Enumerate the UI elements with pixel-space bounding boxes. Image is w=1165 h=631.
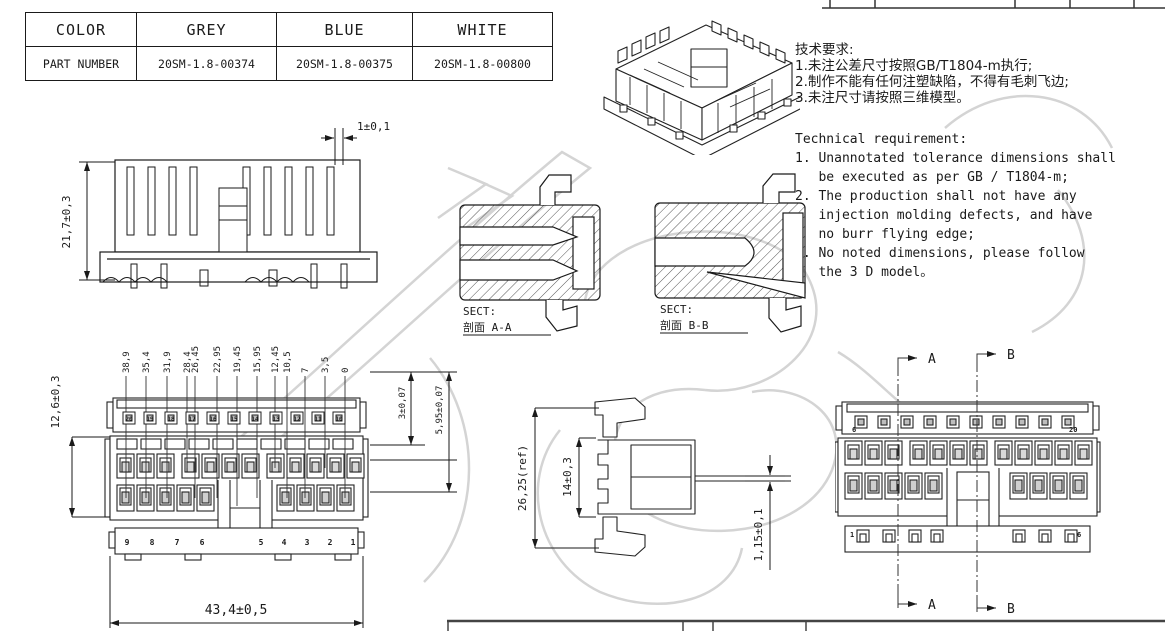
section-b-view: SECT: 剖面 B-B (645, 168, 825, 343)
section-b-name-label: 剖面 B-B (660, 318, 709, 332)
dim-pin-label: 1,15±0,1 (752, 509, 765, 562)
section-a-view: SECT: 剖面 A-A (445, 165, 625, 345)
technical-notes: 技术要求: 1.未注公差尺寸按照GB/T1804-m执行; 2.制作不能有任何注… (795, 42, 1165, 282)
top-pin-number: 16 (209, 416, 217, 423)
top-pin-number: 18 (167, 416, 175, 423)
dim-top-label: 1±0,1 (357, 120, 390, 133)
bottom-pin-number: 3 (305, 538, 310, 547)
pos-dim: 31,9 (163, 351, 173, 373)
top-pin-number: 14 (251, 416, 259, 423)
section-label-a-top: A (928, 352, 936, 367)
dim-right-1-label: 3±0,07 (398, 387, 408, 420)
pos-dim: 22,95 (213, 346, 223, 373)
section-label-a-bottom: A (928, 598, 936, 613)
notes-en-line: 2. The production shall not have any (795, 187, 1165, 206)
dim-body-label: 14±0,3 (561, 457, 574, 497)
parts-table-number-row: PART NUMBER 20SM-1.8-00374 20SM-1.8-0037… (26, 47, 553, 81)
notes-cn-title: 技术要求: (795, 42, 1165, 58)
dim-right-2-label: 5,95±0,07 (435, 386, 445, 435)
color-blue-cell: BLUE (277, 13, 413, 47)
rear-corner-number-tr: 20 (1069, 426, 1077, 434)
top-view: 21,7±0,3 1±0,1 (35, 110, 425, 305)
notes-en-line: no burr flying edge; (795, 225, 1165, 244)
part-number-grey-cell: 20SM-1.8-00374 (137, 47, 277, 81)
bottom-pin-number: 7 (175, 538, 180, 547)
part-number-white-cell: 20SM-1.8-00800 (413, 47, 553, 81)
section-label-b-top: B (1007, 348, 1015, 363)
section-a-name-label: 剖面 A-A (463, 320, 512, 334)
top-pin-number: 13 (272, 416, 280, 423)
parts-table: COLOR GREY BLUE WHITE PART NUMBER 20SM-1… (25, 12, 553, 81)
notes-cn-item: 3.未注尺寸请按照三维模型。 (795, 90, 1165, 106)
notes-en-title: Technical requirement: (795, 130, 1165, 149)
parts-table-header-row: COLOR GREY BLUE WHITE (26, 13, 553, 47)
pos-dim: 35,4 (142, 351, 152, 373)
notes-cn-item: 1.未注公差尺寸按照GB/T1804-m执行; (795, 58, 1165, 74)
part-number-header-cell: PART NUMBER (26, 47, 137, 81)
top-pin-number: 20 (125, 416, 133, 423)
color-grey-cell: GREY (137, 13, 277, 47)
notes-cn-item: 2.制作不能有任何注塑缺陷，不得有毛刺飞边; (795, 74, 1165, 90)
section-a-sect-label: SECT: (463, 305, 496, 318)
bottom-pin-number: 2 (328, 538, 333, 547)
pos-dim: 38,9 (122, 351, 132, 373)
bottom-pin-number: 1 (351, 538, 356, 547)
color-white-cell: WHITE (413, 13, 553, 47)
notes-en-line: 3. No noted dimensions, please follow (795, 244, 1165, 263)
position-dim-labels: 38,9 35,4 31,9 28,4 26,45 22,95 19,45 15… (122, 346, 351, 373)
bottom-pin-number: 4 (282, 538, 287, 547)
bottom-pin-number: 5 (259, 538, 264, 547)
front-top-pin-strip: 20 19 18 17 16 15 14 13 12 11 10 (123, 412, 345, 424)
rear-corner-number-br: 6 (1077, 531, 1081, 539)
bottom-pin-number: 6 (200, 538, 205, 547)
pos-dim: 7 (301, 368, 311, 373)
top-pin-number: 10 (335, 416, 343, 423)
dim-left-label: 12,6±0,3 (49, 376, 62, 429)
pos-dim: 10,5 (283, 351, 293, 373)
top-pin-number: 15 (230, 416, 238, 423)
section-b-sect-label: SECT: (660, 303, 693, 316)
pos-dim: 19,45 (233, 346, 243, 373)
bottom-pin-number: 9 (125, 538, 130, 547)
front-view: 38,9 35,4 31,9 28,4 26,45 22,95 19,45 15… (25, 340, 460, 631)
color-header-cell: COLOR (26, 13, 137, 47)
side-top-latch (595, 398, 645, 437)
notes-en-line: be executed as per GB / T1804-m; (795, 168, 1165, 187)
notes-en-line: injection molding defects, and have (795, 206, 1165, 225)
pos-dim: 3,5 (321, 357, 331, 373)
dim-height-label: 21,7±0,3 (60, 196, 73, 249)
pos-dim: 15,95 (253, 346, 263, 373)
side-bottom-latch (595, 517, 645, 556)
front-feet (125, 554, 351, 560)
rear-corner-number-tl: 6 (852, 426, 856, 434)
dim-overall-label: 26,25(ref) (516, 445, 529, 511)
title-block-bottom-fragment (0, 615, 1165, 631)
side-view: 26,25(ref) 14±0,3 1,15±0,1 (495, 385, 805, 610)
top-pin-number: 17 (188, 416, 196, 423)
notes-en-line: the 3 D model。 (795, 263, 1165, 282)
engineering-drawing-sheet: COLOR GREY BLUE WHITE PART NUMBER 20SM-1… (0, 0, 1165, 631)
rear-view: 6 20 1 6 A B A B (835, 340, 1165, 631)
pos-dim: 0 (341, 368, 351, 373)
rear-corner-number-bl: 1 (850, 531, 854, 539)
top-pin-number: 12 (293, 416, 301, 423)
pos-dim: 12,45 (271, 346, 281, 373)
part-number-blue-cell: 20SM-1.8-00375 (277, 47, 413, 81)
title-block-top-fragment (0, 0, 1165, 12)
top-pin-number: 11 (314, 416, 322, 423)
notes-en-line: 1. Unannotated tolerance dimensions shal… (795, 149, 1165, 168)
isometric-view (560, 5, 800, 155)
pos-dim: 26,45 (191, 346, 201, 373)
top-pin-number: 19 (146, 416, 154, 423)
bottom-pin-number: 8 (150, 538, 155, 547)
